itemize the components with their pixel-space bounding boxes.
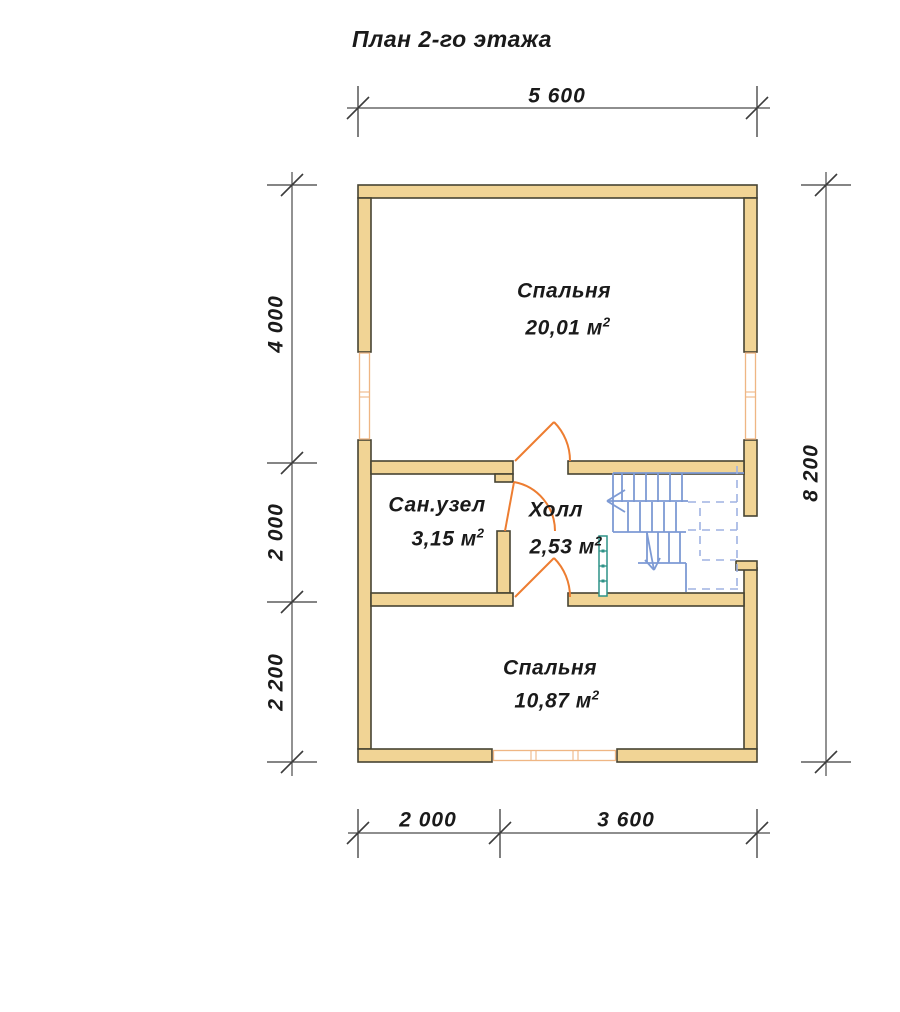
room-bedroom-bottom-name: Спальня (503, 658, 597, 679)
wall-bathroom-jamb (495, 474, 513, 482)
wall-bottom-left (358, 749, 492, 762)
window-bottom (494, 751, 616, 761)
room-bedroom-bottom-area-value: 10,87 м (514, 690, 591, 713)
dim-top-5600: 5 600 (528, 86, 586, 107)
wall-right-lower (744, 568, 757, 749)
wall-hall-top-left (371, 461, 513, 474)
room-hall-area-sup: 2 (595, 534, 603, 549)
door-bedroom-bottom (515, 558, 570, 597)
room-bedroom-top-area: 20,01 м2 (525, 316, 610, 339)
room-bedroom-top-area-value: 20,01 м (525, 317, 602, 340)
room-hall-area: 2,53 м2 (530, 535, 603, 558)
window-right (746, 353, 757, 439)
wall-right-middle (744, 440, 757, 516)
dimension-lines (267, 86, 851, 858)
dim-bottom-2000: 2 000 (399, 810, 457, 831)
wall-left-upper (358, 198, 371, 352)
wall-hall-bottom-left (371, 593, 513, 606)
room-hall-name: Холл (529, 500, 583, 521)
room-bedroom-top-name: Спальня (517, 281, 611, 302)
wall-bathroom-hall (497, 531, 510, 593)
wall-bottom-right (617, 749, 757, 762)
room-bathroom-area: 3,15 м2 (412, 527, 485, 550)
door-bedroom-top (515, 422, 570, 461)
staircase (607, 466, 744, 592)
window-left (360, 353, 371, 439)
room-bathroom-area-sup: 2 (477, 526, 485, 541)
room-bathroom-name: Сан.узел (388, 495, 485, 516)
wall-right-upper (744, 198, 757, 352)
wall-hall-bottom-right (568, 593, 744, 606)
wall-hall-top-right (568, 461, 744, 474)
stair-upper-flight-dashed (688, 466, 741, 592)
room-bedroom-bottom-area-sup: 2 (592, 688, 600, 703)
wall-left-lower (358, 440, 371, 749)
dim-bottom-3600: 3 600 (597, 810, 655, 831)
room-bedroom-top-area-sup: 2 (603, 315, 611, 330)
dim-left-2200: 2 200 (266, 653, 287, 711)
floor-plan-page: План 2-го этажа 5 600 2 000 3 600 4 000 … (0, 0, 900, 1012)
room-bathroom-area-value: 3,15 м (412, 528, 477, 551)
wall-top (358, 185, 757, 198)
page-title: План 2-го этажа (352, 28, 552, 51)
room-hall-area-value: 2,53 м (530, 536, 595, 559)
wall-right-stub (736, 561, 757, 570)
dim-left-2000: 2 000 (266, 503, 287, 561)
dim-right-8200: 8 200 (801, 444, 822, 502)
room-bedroom-bottom-area: 10,87 м2 (514, 689, 599, 712)
dim-left-4000: 4 000 (266, 295, 287, 353)
